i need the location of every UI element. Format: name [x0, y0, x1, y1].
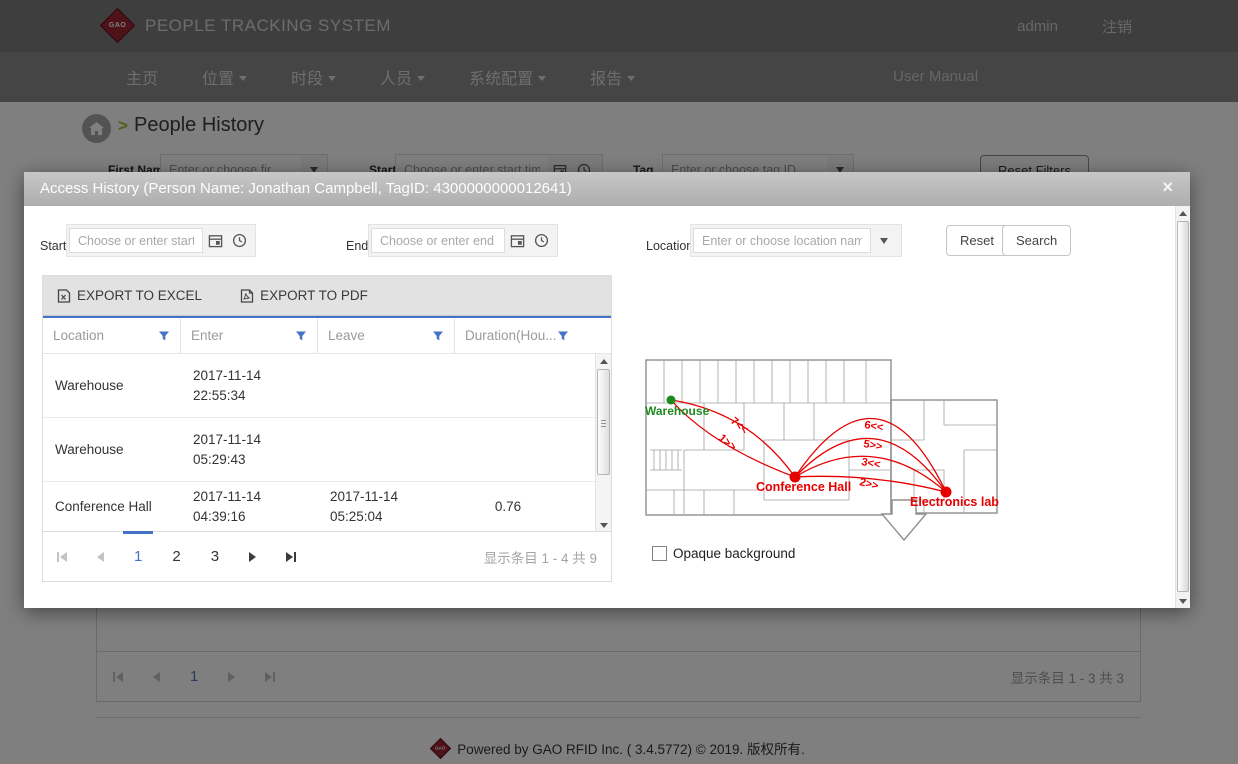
page-number[interactable]: 3 — [211, 548, 219, 565]
grid-body: Warehouse 2017-11-1422:55:34 Warehouse 2… — [43, 353, 611, 531]
electronics-lab-label: Electronics lab — [910, 495, 999, 509]
table-row: Warehouse 2017-11-1422:55:34 — [43, 354, 611, 418]
modal-reset-button[interactable]: Reset — [946, 225, 1008, 256]
last-page-button[interactable] — [286, 552, 296, 562]
scrollbar-thumb[interactable] — [597, 369, 610, 475]
access-history-grid: EXPORT TO EXCEL EXPORT TO PDF Location E… — [42, 275, 612, 582]
cell-location: Warehouse — [43, 440, 181, 460]
cell-duration: 0.76 — [455, 497, 579, 517]
calendar-icon[interactable] — [203, 225, 227, 256]
filter-icon[interactable] — [557, 330, 569, 342]
cell-enter: 2017-11-1404:39:16 — [181, 487, 318, 527]
modal-start-input[interactable] — [69, 228, 203, 253]
floor-plan-map: Warehouse Conference Hall Electronics la… — [644, 350, 1004, 546]
scroll-up-icon[interactable] — [1176, 206, 1190, 220]
transition-label: 5>> — [862, 438, 883, 453]
column-header-location[interactable]: Location — [43, 318, 181, 353]
clock-icon[interactable] — [529, 225, 553, 256]
modal-location-field — [690, 224, 902, 257]
export-pdf-button[interactable]: EXPORT TO PDF — [240, 288, 368, 303]
modal-start-label: Start — [40, 239, 66, 253]
grid-pagination: 1 2 3 显示条目 1 - 4 共 9 — [43, 531, 611, 581]
clock-icon[interactable] — [227, 225, 251, 256]
close-icon[interactable]: × — [1157, 177, 1178, 198]
column-header-leave[interactable]: Leave — [318, 318, 455, 353]
cell-enter: 2017-11-1405:29:43 — [181, 430, 318, 470]
next-page-button[interactable] — [249, 552, 256, 562]
transition-arcs — [671, 400, 946, 492]
transition-label: 6<< — [864, 419, 885, 434]
opaque-background-label: Opaque background — [673, 546, 795, 561]
modal-end-label: End — [346, 239, 368, 253]
table-row: Conference Hall 2017-11-1404:39:16 2017-… — [43, 482, 611, 531]
pdf-file-icon — [240, 289, 254, 303]
conference-hall-label: Conference Hall — [756, 480, 851, 494]
modal-search-button[interactable]: Search — [1002, 225, 1071, 256]
cell-enter: 2017-11-1422:55:34 — [181, 366, 318, 406]
column-header-duration[interactable]: Duration(Hou... — [455, 318, 579, 353]
table-scrollbar[interactable] — [595, 354, 611, 532]
modal-location-input[interactable] — [693, 228, 871, 253]
filter-icon[interactable] — [295, 330, 307, 342]
opaque-background-checkbox[interactable] — [652, 546, 667, 561]
modal-end-input[interactable] — [371, 228, 505, 253]
chevron-down-icon — [880, 238, 888, 244]
excel-file-icon — [57, 289, 71, 303]
prev-page-button — [97, 552, 104, 562]
warehouse-label: Warehouse — [645, 404, 710, 418]
scroll-up-icon[interactable] — [596, 354, 611, 368]
modal-title: Access History (Person Name: Jonathan Ca… — [24, 172, 1190, 206]
cell-leave: 2017-11-1405:25:04 — [318, 487, 455, 527]
transition-label: 3<< — [860, 456, 881, 471]
scroll-down-icon[interactable] — [596, 518, 611, 532]
first-page-button — [57, 552, 67, 562]
filter-icon[interactable] — [158, 330, 170, 342]
filter-icon[interactable] — [432, 330, 444, 342]
grid-toolbar: EXPORT TO EXCEL EXPORT TO PDF — [43, 276, 611, 316]
modal-end-field — [368, 224, 558, 257]
modal-start-field — [66, 224, 256, 257]
export-excel-button[interactable]: EXPORT TO EXCEL — [57, 288, 202, 303]
grid-header: Location Enter Leave Duration(Hou... — [43, 316, 611, 353]
modal-scrollbar[interactable] — [1175, 206, 1190, 608]
scroll-down-icon[interactable] — [1176, 594, 1190, 608]
opaque-background-option: Opaque background — [652, 546, 795, 561]
column-header-enter[interactable]: Enter — [181, 318, 318, 353]
location-dropdown[interactable] — [871, 225, 897, 256]
page-number[interactable]: 2 — [172, 548, 180, 565]
cell-location: Warehouse — [43, 376, 181, 396]
transition-label: 7<< — [728, 415, 750, 436]
cell-location: Conference Hall — [43, 497, 181, 517]
grid-page-summary: 显示条目 1 - 4 共 9 — [484, 547, 597, 567]
table-row: Warehouse 2017-11-1405:29:43 — [43, 418, 611, 482]
access-history-modal: Access History (Person Name: Jonathan Ca… — [24, 172, 1190, 608]
scrollbar-thumb[interactable] — [1177, 221, 1189, 592]
modal-location-label: Location — [646, 239, 693, 253]
calendar-icon[interactable] — [505, 225, 529, 256]
page-number-current[interactable]: 1 — [134, 548, 142, 565]
